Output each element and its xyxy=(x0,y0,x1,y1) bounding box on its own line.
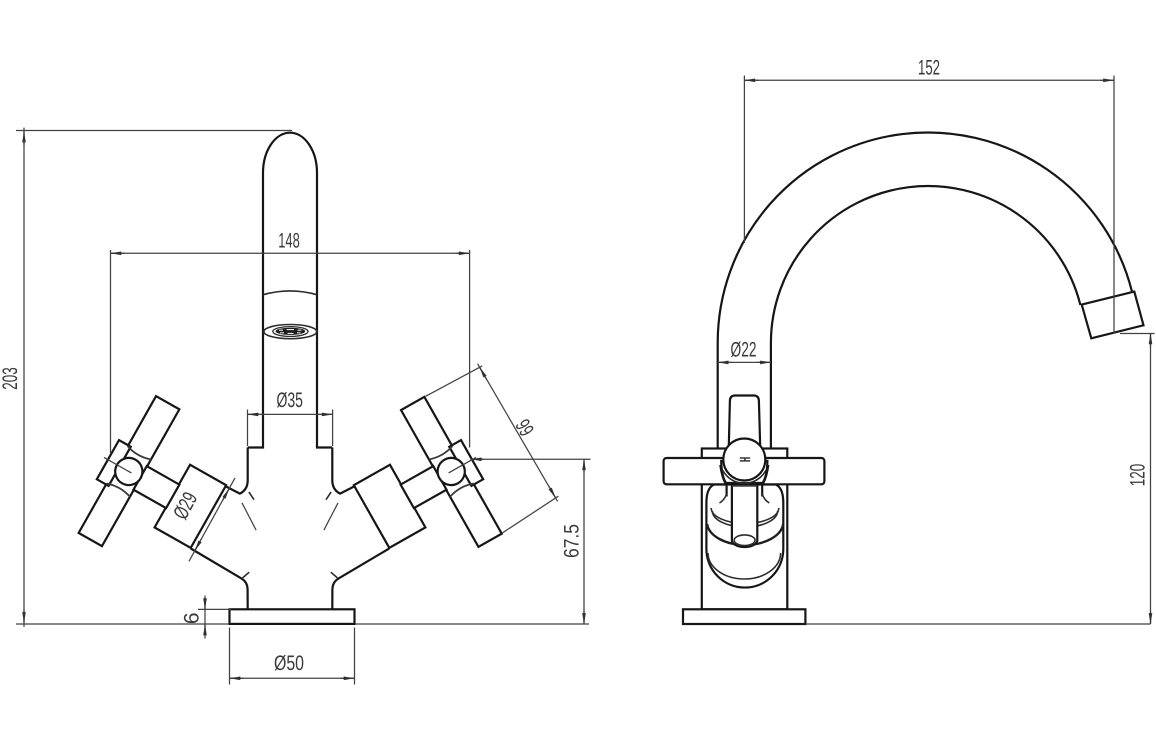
svg-text:Ø22: Ø22 xyxy=(731,339,757,362)
svg-text:6: 6 xyxy=(180,612,203,624)
svg-text:Ø50: Ø50 xyxy=(274,652,304,675)
svg-text:Ø35: Ø35 xyxy=(276,389,303,412)
svg-text:148: 148 xyxy=(278,229,300,252)
svg-text:203: 203 xyxy=(0,367,22,390)
svg-text:66: 66 xyxy=(512,415,539,439)
svg-text:67.5: 67.5 xyxy=(561,524,584,558)
svg-text:152: 152 xyxy=(918,57,940,80)
svg-text:120: 120 xyxy=(1127,464,1150,487)
